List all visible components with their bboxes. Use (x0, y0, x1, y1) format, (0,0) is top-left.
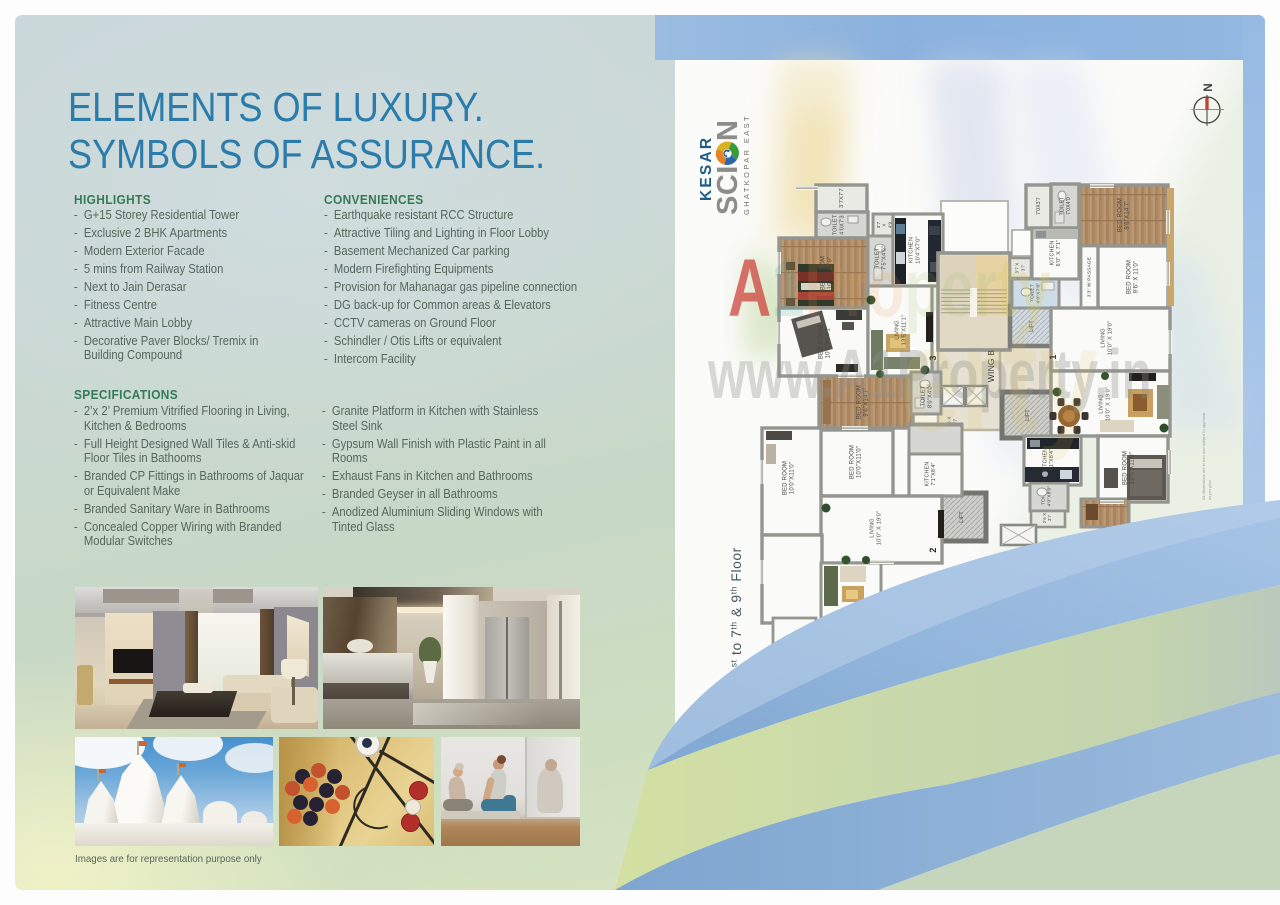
svg-text:BED ROOM: BED ROOM (1123, 451, 1129, 485)
svg-text:4'0X7'3: 4'0X7'3 (839, 215, 845, 235)
svg-text:9'6"X14'7": 9'6"X14'7" (1125, 200, 1131, 229)
svg-text:10'0"X11'0": 10'0"X11'0" (857, 446, 863, 478)
svg-text:10'0"X11'0": 10'0"X11'0" (790, 462, 796, 494)
svg-text:BED ROOM: BED ROOM (850, 445, 856, 479)
svg-text:3'7: 3'7 (876, 221, 881, 228)
svg-text:2: 2 (928, 547, 938, 552)
svg-text:LIVING: LIVING (870, 518, 876, 538)
svg-text:7'0X3'7: 7'0X3'7 (1036, 197, 1042, 215)
svg-text:BED ROOM: BED ROOM (1118, 198, 1124, 232)
svg-text:SCI: SCI (712, 165, 744, 215)
svg-text:as per plan: as per plan (1207, 480, 1212, 500)
svg-text:KITCHEN: KITCHEN (925, 461, 931, 486)
svg-text:2'6 X: 2'6 X (1042, 513, 1047, 523)
svg-text:7'0X4'0: 7'0X4'0 (1066, 197, 1072, 215)
svg-text:BED ROOM: BED ROOM (783, 461, 789, 495)
svg-text:erty: erty (900, 295, 1098, 463)
svg-text:4'9: 4'9 (887, 221, 892, 228)
svg-text:BED ROOM: BED ROOM (1127, 260, 1133, 294)
svg-text:X: X (882, 223, 887, 226)
svg-text:TOILET: TOILET (1060, 197, 1066, 216)
svg-text:TOILET: TOILET (833, 214, 839, 235)
svg-text:10'0"X11'0": 10'0"X11'0" (1130, 452, 1136, 484)
svg-text:3'3" W PASSAGE: 3'3" W PASSAGE (1087, 257, 1093, 298)
svg-text:N: N (712, 120, 744, 141)
svg-text:10'0" X 19'0": 10'0" X 19'0" (876, 511, 882, 545)
svg-text:6'0" X 7'1": 6'0" X 7'1" (1056, 240, 1062, 267)
svg-text:GHATKOPAR EAST: GHATKOPAR EAST (742, 114, 751, 215)
svg-text:All dimensions are in mm and s: All dimensions are in mm and subject to … (1201, 413, 1206, 500)
svg-text:7'1"X8'4": 7'1"X8'4" (931, 462, 937, 485)
svg-text:LIFT: LIFT (959, 511, 965, 523)
svg-text:4'0"X8'0": 4'0"X8'0" (1047, 485, 1053, 506)
svg-text:3'7: 3'7 (1047, 515, 1052, 522)
svg-text:3'7X7'7: 3'7X7'7 (839, 188, 845, 208)
svg-text:N: N (1201, 83, 1213, 91)
svg-text:9'6" X 11'0": 9'6" X 11'0" (1134, 261, 1140, 294)
